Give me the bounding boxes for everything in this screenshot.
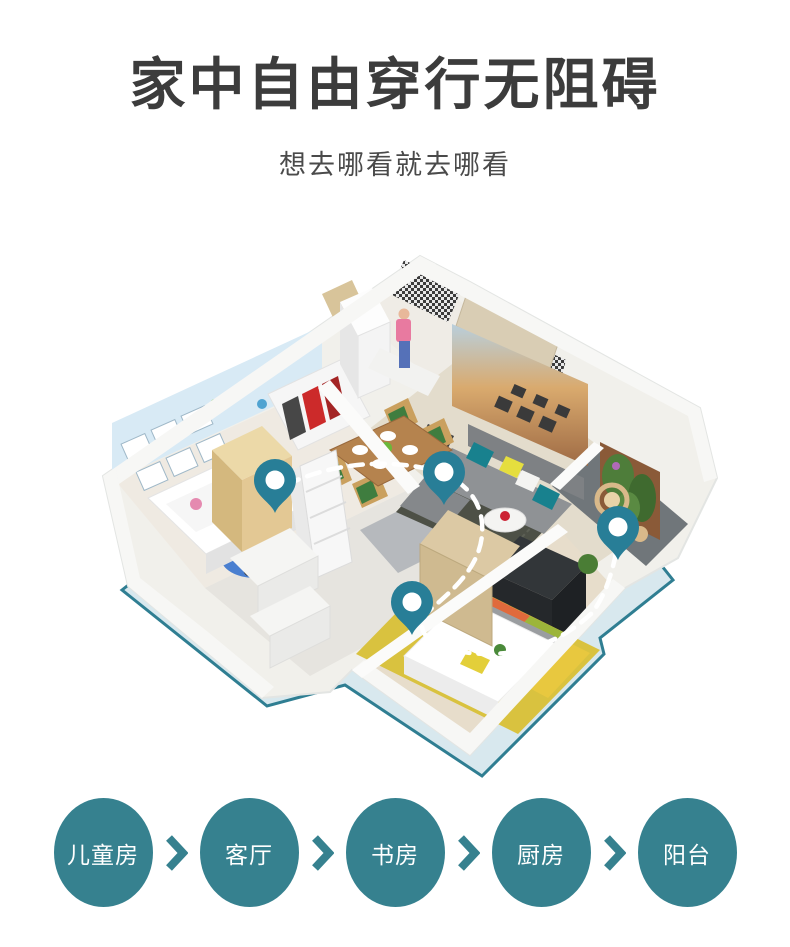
chevron-right-icon [603,834,626,872]
room-nav-item-children-room[interactable]: 儿童房 [54,798,153,907]
header: 家中自由穿行无阻碍 想去哪看就去哪看 [0,40,790,182]
chevron-right-icon [457,834,480,872]
room-nav-item-study[interactable]: 书房 [346,798,445,907]
page-subtitle: 想去哪看就去哪看 [0,143,790,182]
chevron-right-icon [165,834,188,872]
room-nav-label: 儿童房 [67,836,139,870]
room-nav: 儿童房 客厅 书房 厨房 阳台 [0,798,790,907]
topiary [578,554,598,574]
coffee-table [484,508,526,532]
room-nav-label: 阳台 [663,836,711,870]
room-nav-label: 书房 [371,836,419,870]
room-nav-label: 客厅 [225,836,273,870]
promo-page: { "colors": { "accent_teal": "#36818F", … [0,0,790,947]
apartment [103,256,717,755]
room-nav-item-balcony[interactable]: 阳台 [638,798,737,907]
room-nav-item-living-room[interactable]: 客厅 [200,798,299,907]
chevron-right-icon [311,834,334,872]
room-nav-item-kitchen[interactable]: 厨房 [492,798,591,907]
room-nav-label: 厨房 [517,836,565,870]
page-title: 家中自由穿行无阻碍 [0,40,790,121]
floorplan-illustration [0,198,790,798]
